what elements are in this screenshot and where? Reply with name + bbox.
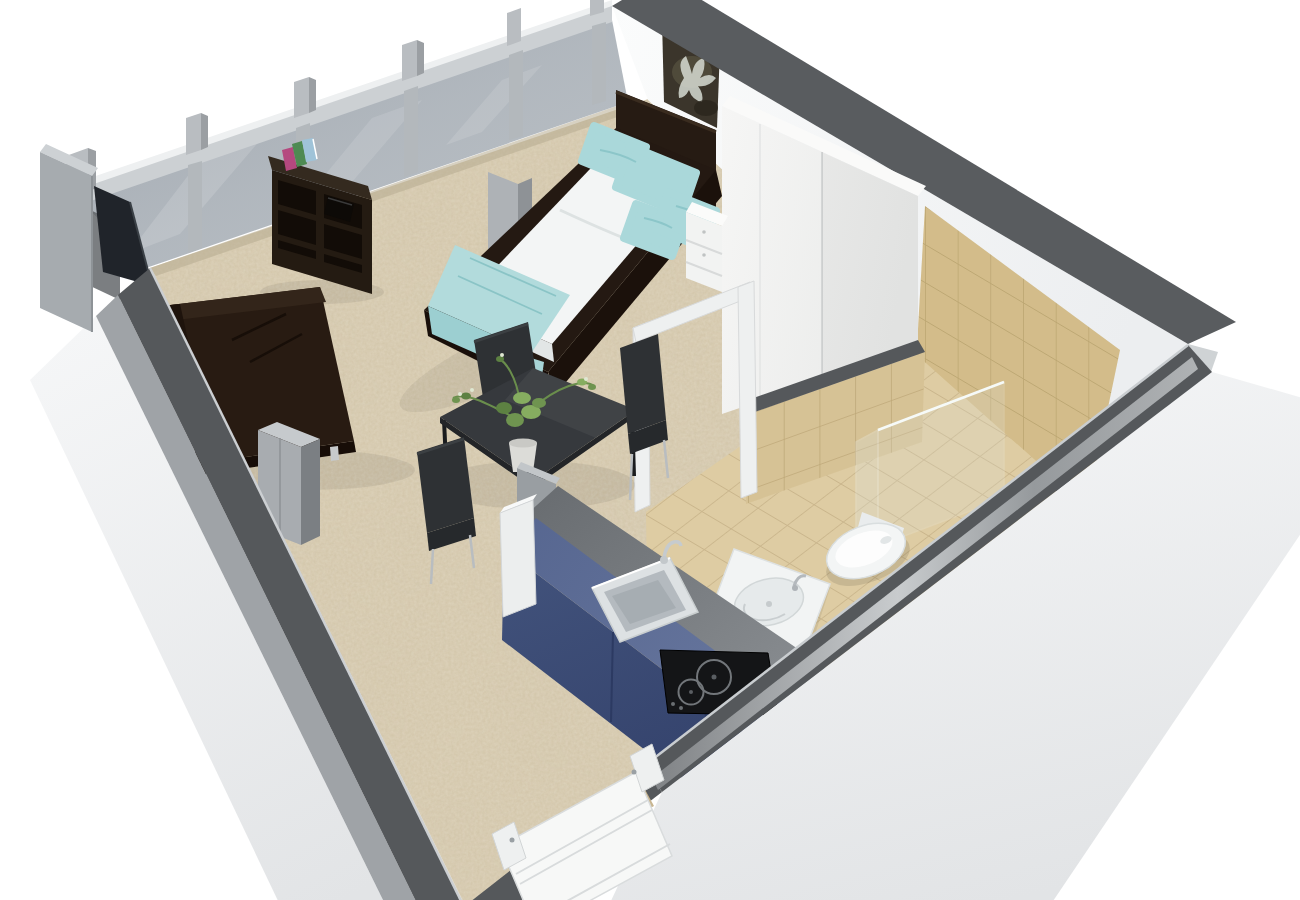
window-post-side [309,77,316,113]
door-hinge [632,770,637,775]
leaf-small [452,397,460,403]
blossom [584,377,588,381]
leaf-small [588,384,596,390]
plant-pot-rim [509,439,537,448]
leaf-cluster [496,402,512,414]
kitchen-faucet-base [660,556,668,564]
window-post [186,113,201,155]
drawer-handle [702,230,706,234]
sink-drain [766,601,772,607]
drawer-handle [702,253,706,257]
window-mullion [404,86,418,177]
burner-center [712,675,717,680]
window-mullion [592,22,606,105]
window-mullion [509,50,523,140]
cooktop-knob [671,702,675,706]
cooktop-knob [679,706,683,710]
doorway-post-right [738,281,757,498]
window-post-side [201,113,208,150]
window-post [402,40,417,81]
end-panel [500,500,536,617]
leaf-small [461,393,471,400]
sink-faucet-base [792,585,798,591]
leaf-cluster [532,398,546,408]
pedestal-side [301,439,320,545]
window-post [507,8,521,46]
leaf-cluster [506,413,524,427]
blossom [470,388,474,392]
burner-center [689,690,693,694]
leaf-cluster [513,392,531,404]
sofa-leg [330,446,339,461]
blossom [458,392,462,396]
blossom [500,353,504,357]
west-corner-fin [40,152,92,332]
nightstand [686,202,728,292]
chair-backrest [620,334,666,434]
wall-art-shadow [694,100,718,116]
leaf-small [496,356,504,362]
window-post-side [417,40,424,76]
window-mullion [188,161,202,253]
apartment-scene [0,0,1300,900]
window-post [294,77,309,118]
door-hinge [510,838,515,843]
floorplan-render [0,0,1300,900]
